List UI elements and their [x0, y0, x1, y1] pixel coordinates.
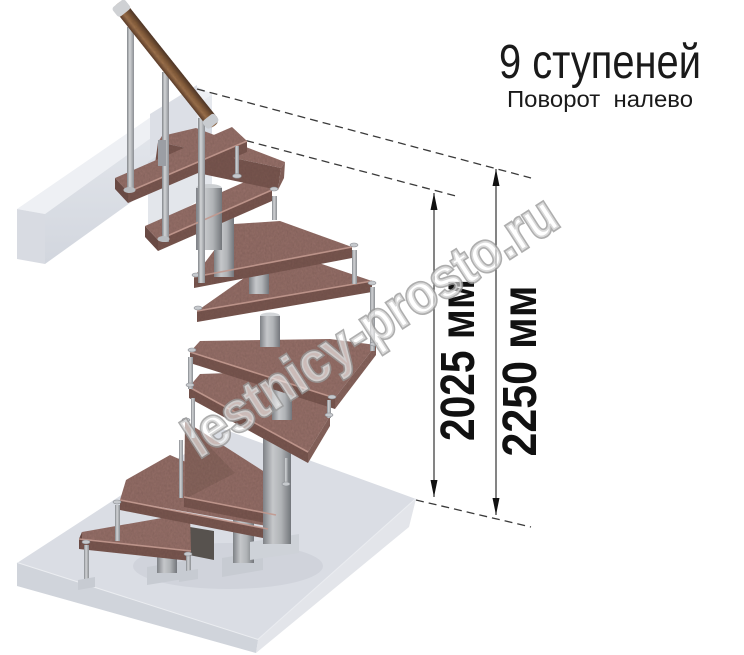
svg-text:Поворот налево: Поворот налево	[507, 86, 693, 112]
svg-text:9 ступеней: 9 ступеней	[499, 36, 701, 89]
svg-text:2250 мм: 2250 мм	[494, 286, 547, 457]
